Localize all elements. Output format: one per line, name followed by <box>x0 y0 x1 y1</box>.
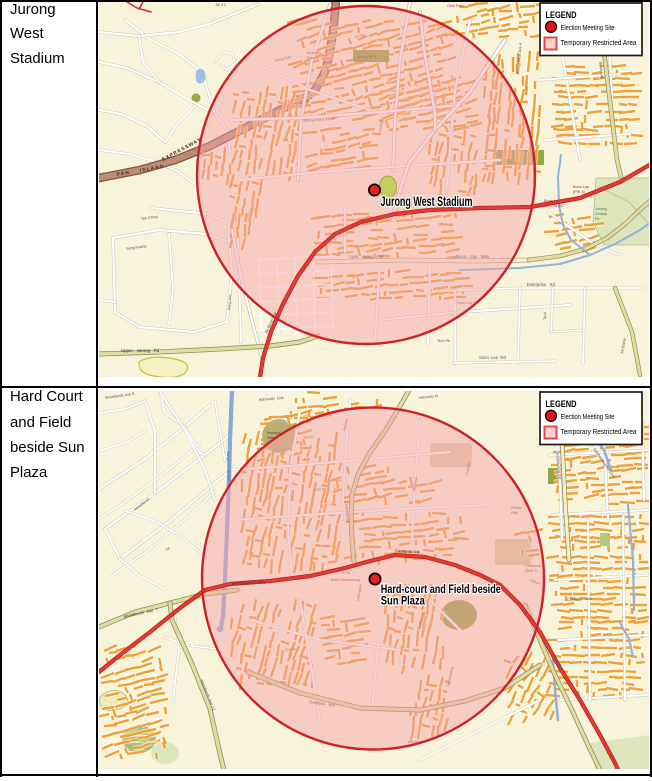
svg-text:Election Meeting Site: Election Meeting Site <box>561 25 615 32</box>
svg-text:Tech Pk: Tech Pk <box>437 339 450 343</box>
svg-text:Boon Lay: Boon Lay <box>573 185 589 189</box>
svg-text:Temporary Restricted Area: Temporary Restricted Area <box>561 429 637 436</box>
svg-text:Enterprise Rd: Enterprise Rd <box>527 282 556 287</box>
svg-text:Jurong: Jurong <box>595 207 607 211</box>
svg-text:Sun Plaza: Sun Plaza <box>381 594 425 608</box>
svg-text:Election Meeting Site: Election Meeting Site <box>561 414 615 421</box>
svg-text:Central: Central <box>595 212 607 216</box>
svg-text:Owk Path: Owk Path <box>447 4 463 8</box>
svg-text:Sanctuary 3 levesBy: Sanctuary 3 levesBy <box>129 740 159 744</box>
svg-text:LEGEND: LEGEND <box>546 399 577 410</box>
svg-text:Tech: Tech <box>543 312 547 320</box>
svg-text:Jurong West Stadium: Jurong West Stadium <box>381 193 473 209</box>
svg-text:Jln 4 L: Jln 4 L <box>215 3 226 7</box>
svg-text:(PIE 4): (PIE 4) <box>573 190 586 194</box>
svg-text:Upper Jurong Rd: Upper Jurong Rd <box>121 348 160 353</box>
svg-text:Soon Lee Rd: Soon Lee Rd <box>479 355 506 360</box>
svg-text:LEGEND: LEGEND <box>546 10 577 21</box>
svg-text:Pk: Pk <box>595 217 600 221</box>
svg-text:Temporary Restricted Area: Temporary Restricted Area <box>561 40 637 47</box>
